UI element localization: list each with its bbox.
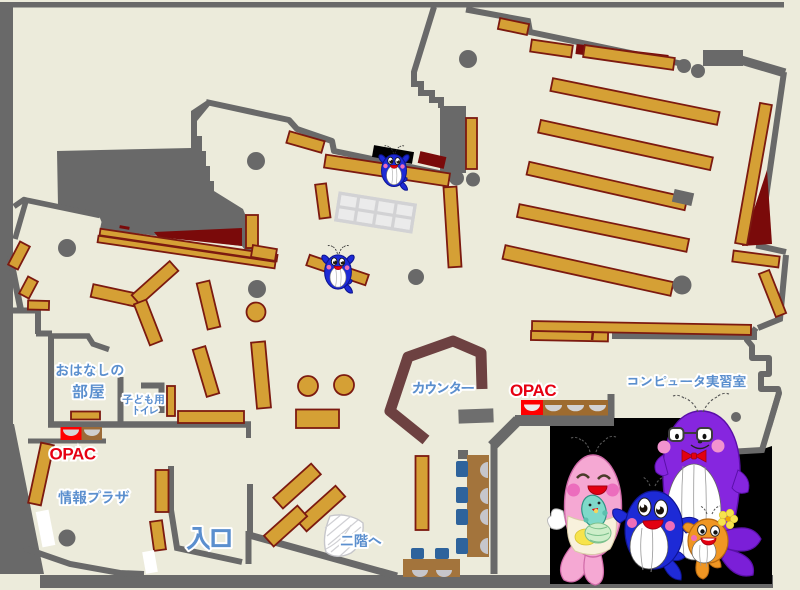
svg-text:OPAC: OPAC [50,445,96,464]
svg-text:OPAC: OPAC [510,381,556,400]
